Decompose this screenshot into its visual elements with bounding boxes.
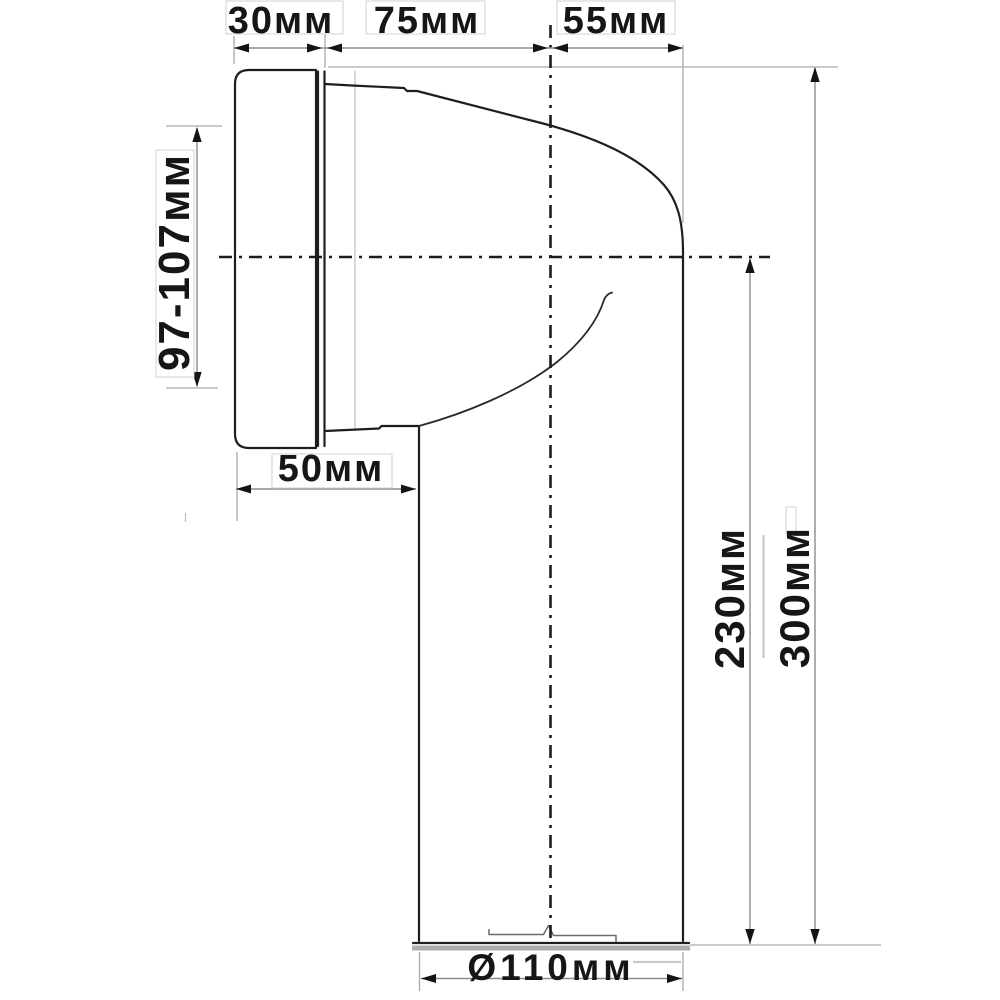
arrow-55-right xyxy=(668,44,683,53)
dim-label-taper-length: 75мм xyxy=(374,0,481,42)
dim-label-outlet-diameter: Ø110мм xyxy=(467,947,634,988)
body-upper-contour xyxy=(325,84,683,941)
dim-label-bend-length: 55мм xyxy=(563,0,670,42)
dim-label-axis-to-outlet: 230мм xyxy=(706,527,753,669)
dim-label-overall-height: 300мм xyxy=(771,526,818,668)
inner-bend-curve xyxy=(419,293,612,427)
body-lower-contour xyxy=(325,426,419,941)
drawing-svg: 30мм 75мм 55мм 97-107мм 50мм 230мм 300мм… xyxy=(0,0,1000,1000)
label-boxes xyxy=(156,1,675,488)
technical-drawing-canvas: 30мм 75мм 55мм 97-107мм 50мм 230мм 300мм… xyxy=(0,0,1000,1000)
arrow-30-left xyxy=(234,44,249,53)
dim-label-socket-length: 50мм xyxy=(278,448,385,490)
part-outline xyxy=(235,70,690,951)
arrow-50-right xyxy=(401,485,416,494)
arrow-dia-left xyxy=(421,974,436,983)
arrow-300-up xyxy=(810,67,819,82)
outlet-inner-stop-edge xyxy=(489,926,616,943)
arrow-55-left xyxy=(553,44,568,53)
arrow-300-down xyxy=(810,929,819,944)
dim-label-flange-depth: 30мм xyxy=(228,0,335,42)
arrow-height-up xyxy=(192,127,201,142)
arrow-50-left xyxy=(236,485,251,494)
arrow-75-left xyxy=(327,44,342,53)
arrow-75-right xyxy=(533,44,548,53)
arrow-30-right xyxy=(307,44,322,53)
arrow-dia-right xyxy=(667,974,682,983)
dim-label-inlet-height-range: 97-107мм xyxy=(150,153,199,371)
arrow-230-up xyxy=(745,258,754,273)
flange-outline xyxy=(235,70,316,448)
arrow-230-down xyxy=(745,929,754,944)
